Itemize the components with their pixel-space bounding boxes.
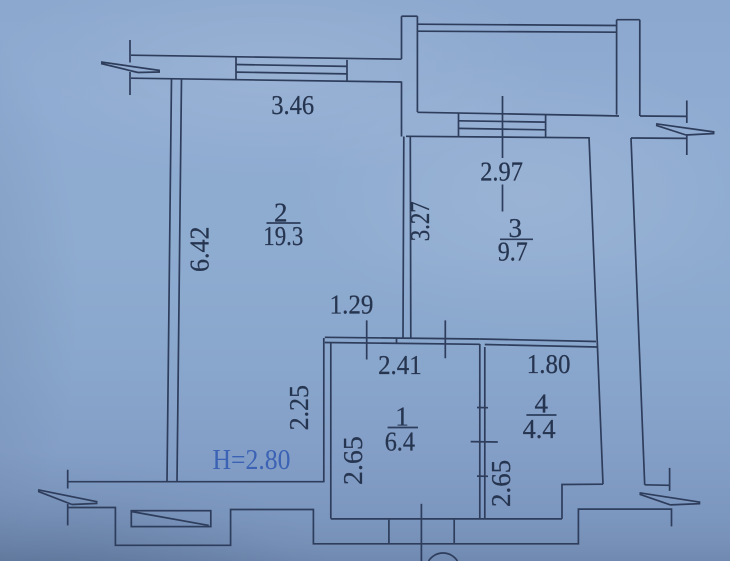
svg-text:2.41: 2.41	[378, 350, 422, 380]
svg-text:3.27: 3.27	[405, 201, 435, 241]
svg-text:9.7: 9.7	[498, 237, 528, 267]
svg-text:3.46: 3.46	[271, 90, 314, 120]
svg-text:2.65: 2.65	[338, 436, 368, 485]
svg-text:H=2.80: H=2.80	[213, 445, 291, 476]
svg-text:2.65: 2.65	[486, 460, 516, 507]
svg-text:2.97: 2.97	[480, 157, 523, 187]
svg-text:4.4: 4.4	[523, 414, 556, 444]
svg-text:2.25: 2.25	[284, 385, 314, 430]
svg-text:6.4: 6.4	[385, 427, 416, 457]
svg-text:6.42: 6.42	[185, 227, 215, 273]
svg-text:19.3: 19.3	[263, 221, 303, 251]
svg-text:1.29: 1.29	[330, 289, 374, 319]
svg-text:1.80: 1.80	[527, 349, 571, 379]
